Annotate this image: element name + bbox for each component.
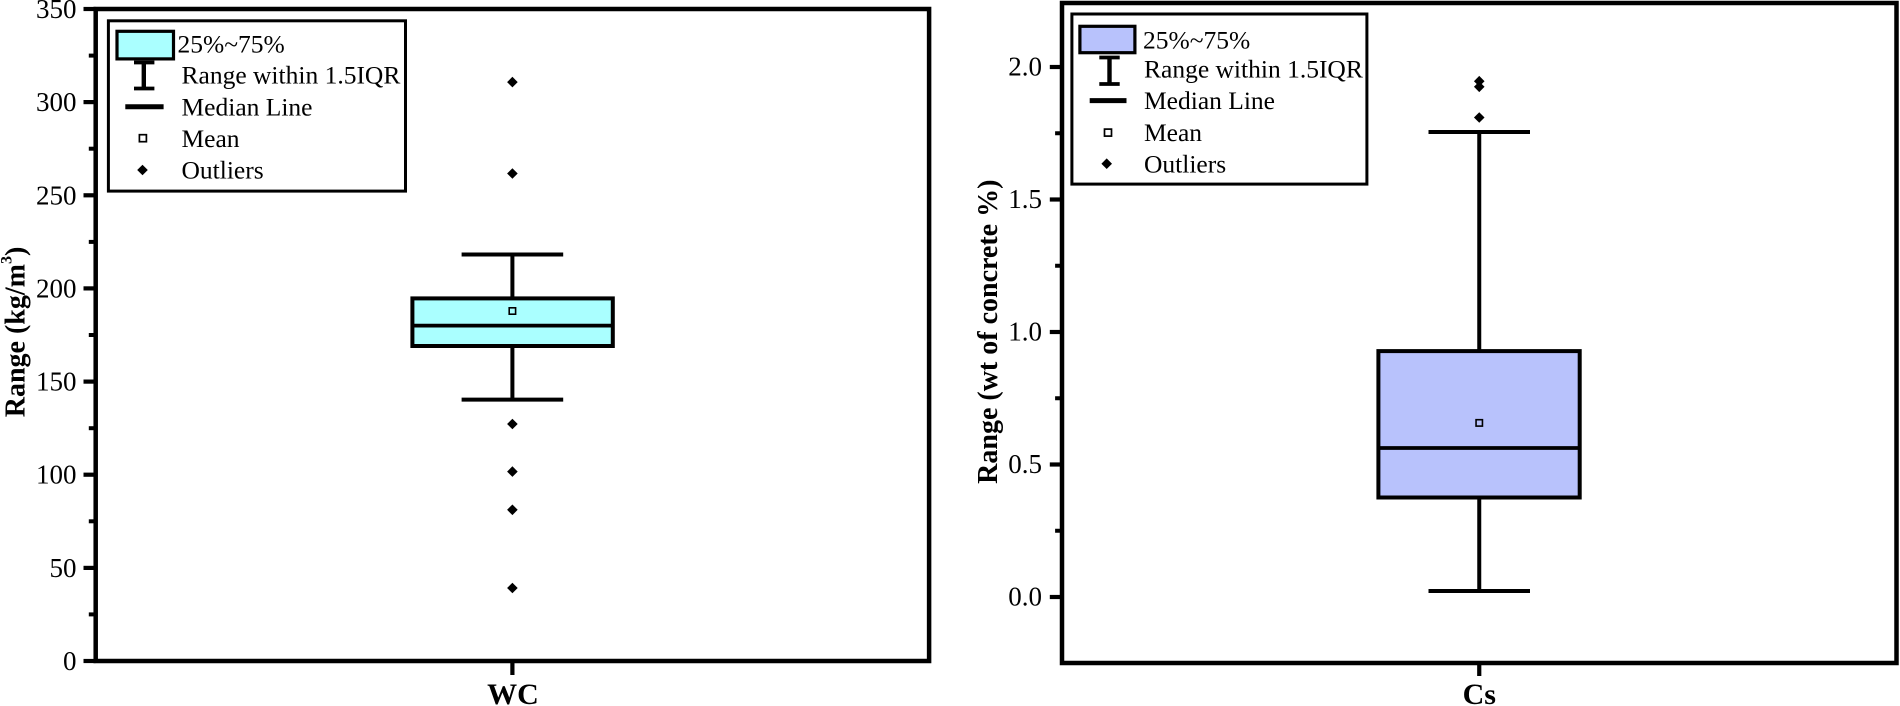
svg-text:Range (wt of concrete %): Range (wt of concrete %) bbox=[973, 180, 1004, 484]
svg-text:350: 350 bbox=[36, 0, 77, 24]
svg-text:25%~75%: 25%~75% bbox=[178, 30, 285, 59]
svg-text:Outliers: Outliers bbox=[1144, 149, 1226, 178]
svg-text:150: 150 bbox=[36, 367, 77, 397]
svg-text:1.0: 1.0 bbox=[1008, 316, 1042, 346]
svg-text:WC: WC bbox=[487, 678, 539, 706]
svg-text:Mean: Mean bbox=[182, 124, 240, 153]
svg-text:Median Line: Median Line bbox=[182, 92, 313, 121]
svg-text:0.5: 0.5 bbox=[1008, 449, 1042, 479]
svg-text:1.5: 1.5 bbox=[1008, 184, 1042, 214]
svg-text:Range within 1.5IQR: Range within 1.5IQR bbox=[182, 61, 401, 90]
svg-text:Range (kg/m3): Range (kg/m3) bbox=[0, 247, 32, 418]
svg-text:Cs: Cs bbox=[1463, 678, 1496, 706]
svg-text:2.0: 2.0 bbox=[1008, 51, 1042, 81]
svg-text:Median Line: Median Line bbox=[1144, 86, 1275, 115]
svg-text:Range within 1.5IQR: Range within 1.5IQR bbox=[1144, 54, 1363, 83]
svg-text:200: 200 bbox=[36, 273, 77, 303]
svg-text:0: 0 bbox=[63, 646, 77, 676]
svg-text:250: 250 bbox=[36, 180, 77, 210]
svg-text:100: 100 bbox=[36, 460, 77, 490]
svg-text:50: 50 bbox=[50, 553, 77, 583]
svg-text:Mean: Mean bbox=[1144, 118, 1202, 147]
svg-text:300: 300 bbox=[36, 87, 77, 117]
svg-text:25%~75%: 25%~75% bbox=[1143, 25, 1250, 54]
svg-text:Outliers: Outliers bbox=[182, 156, 264, 185]
svg-text:0.0: 0.0 bbox=[1008, 581, 1042, 611]
